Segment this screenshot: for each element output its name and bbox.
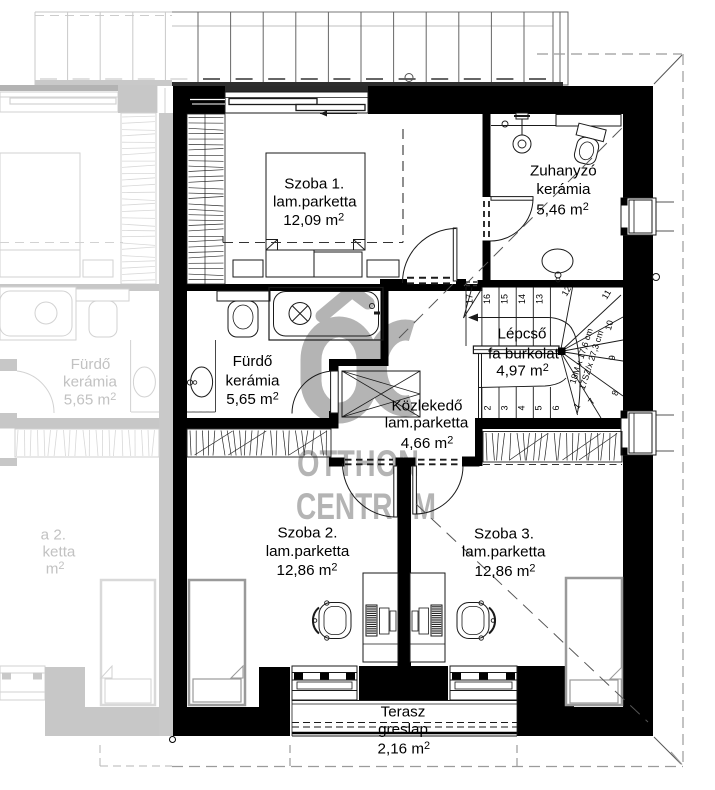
svg-text:Közlekedő: Közlekedő (392, 397, 463, 414)
svg-text:4,66 m2: 4,66 m2 (401, 435, 454, 453)
svg-text:9: 9 (607, 355, 617, 361)
svg-text:lam.parketta: lam.parketta (462, 544, 546, 561)
svg-text:a 2.: a 2. (41, 527, 66, 544)
svg-text:5,65 m2: 5,65 m2 (226, 390, 279, 408)
svg-text:Szoba 2.: Szoba 2. (278, 524, 338, 541)
svg-text:Lépcső: Lépcső (498, 326, 547, 343)
svg-text:fa burkolat: fa burkolat (488, 345, 560, 362)
svg-text:kerámia: kerámia (63, 374, 118, 391)
svg-text:5: 5 (534, 405, 544, 410)
svg-text:lam.parketta: lam.parketta (266, 543, 350, 560)
svg-text:15: 15 (500, 294, 510, 304)
svg-text:3: 3 (500, 405, 510, 410)
svg-text:4,97 m2: 4,97 m2 (496, 362, 549, 380)
svg-text:Fürdő: Fürdő (233, 353, 273, 370)
svg-text:Terasz: Terasz (381, 704, 426, 721)
svg-text:13: 13 (535, 294, 545, 304)
svg-text:Zuhanyzó: Zuhanyzó (530, 163, 597, 180)
svg-text:Fürdő: Fürdő (71, 356, 111, 373)
svg-text:2: 2 (483, 405, 493, 410)
svg-text:5,46 m2: 5,46 m2 (536, 201, 589, 219)
svg-text:14: 14 (517, 294, 527, 304)
svg-text:12,86 m2: 12,86 m2 (277, 562, 338, 580)
svg-text:greslap: greslap (378, 721, 428, 738)
svg-text:lam.parketta: lam.parketta (385, 414, 469, 431)
svg-text:17: 17 (465, 294, 475, 304)
svg-text:2,16 m2: 2,16 m2 (378, 740, 431, 758)
svg-text:lam.parketta: lam.parketta (273, 193, 357, 210)
svg-text:Szoba 3.: Szoba 3. (474, 526, 534, 543)
svg-text:12,86 m2: 12,86 m2 (475, 563, 536, 581)
svg-text:Szoba 1.: Szoba 1. (284, 175, 344, 192)
svg-text:kerámia: kerámia (225, 373, 280, 390)
svg-text:5,65 m2: 5,65 m2 (64, 391, 117, 409)
svg-text:kerámia: kerámia (536, 181, 591, 198)
svg-text:12,09 m2: 12,09 m2 (283, 212, 344, 230)
svg-text:16: 16 (482, 294, 492, 304)
svg-text:4: 4 (517, 405, 527, 410)
svg-text:6: 6 (551, 405, 561, 410)
svg-text:ketta: ketta (42, 544, 75, 561)
